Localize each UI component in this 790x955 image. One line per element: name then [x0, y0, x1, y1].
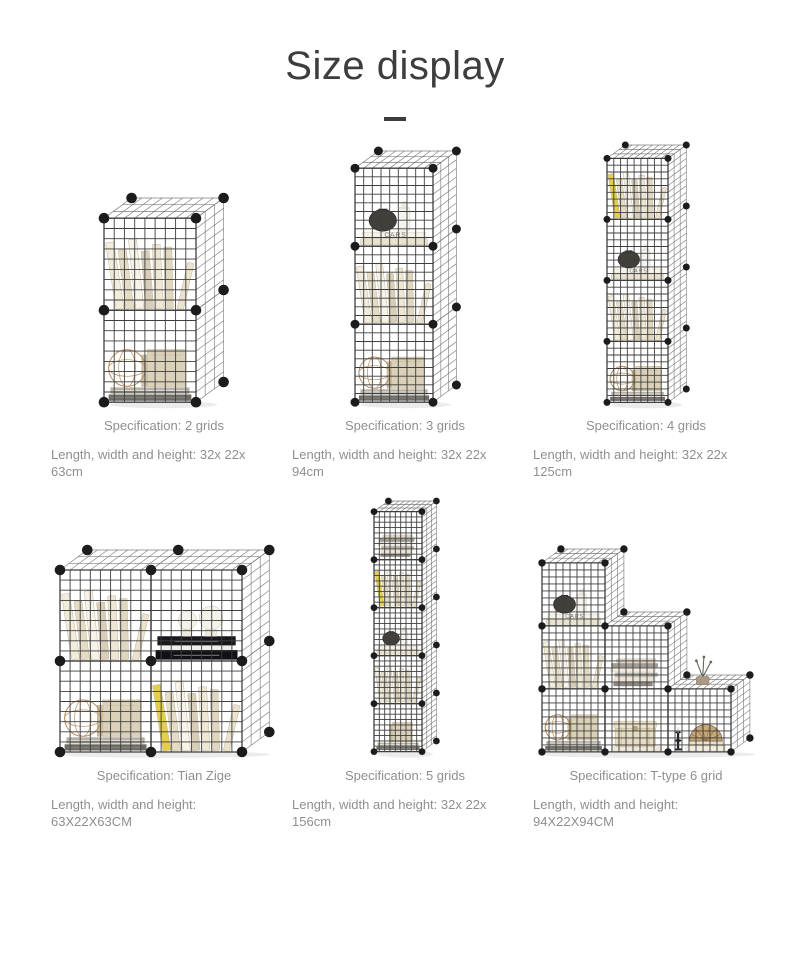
dimensions-label: Length, width and height: 63X22X63CM: [48, 797, 267, 831]
spec-label: Specification: 5 grids: [289, 768, 521, 784]
dimensions-label: Length, width and height: 32x 22x 156cm: [289, 797, 508, 831]
shelf-illustration-5-grids: [367, 493, 443, 761]
spec-label: Specification: 3 grids: [289, 418, 521, 434]
spec-label: Specification: Tian Zige: [48, 768, 280, 784]
size-display-section: Size display Specification: 2 grids Leng…: [0, 44, 790, 831]
product-photo-3-grids: CARS: [289, 135, 521, 411]
product-card-3-grids: CARS Specification: 3 grids Length, widt…: [289, 135, 521, 481]
product-caption: Specification: 5 grids Length, width and…: [289, 768, 521, 831]
dimensions-label: Length, width and height: 32x 22x 125cm: [530, 447, 749, 481]
page-title: Size display: [0, 44, 790, 89]
shelf-illustration-t-type-6-grid: CARS: [535, 541, 757, 761]
product-photo-t-type-6-grid: CARS: [530, 493, 762, 761]
spec-label: Specification: 2 grids: [48, 418, 280, 434]
dimensions-label: Length, width and height: 32x 22x 94cm: [289, 447, 508, 481]
shelf-illustration-3-grids: CARS: [348, 143, 463, 411]
title-divider: [384, 117, 406, 121]
spec-label: Specification: T-type 6 grid: [530, 768, 762, 784]
product-photo-5-grids: [289, 493, 521, 761]
product-grid: Specification: 2 grids Length, width and…: [0, 135, 790, 831]
product-photo-2-grids: [48, 135, 280, 411]
dimensions-label: Length, width and height: 94X22X94CM: [530, 797, 749, 831]
product-caption: Specification: Tian Zige Length, width a…: [48, 768, 280, 831]
product-photo-4-grids: CARS: [530, 135, 762, 411]
product-caption: Specification: 4 grids Length, width and…: [530, 418, 762, 481]
shelf-illustration-2-grids: [97, 190, 231, 411]
product-card-t-type-6-grid: CARS Specification: T-type 6 grid Length…: [530, 493, 762, 831]
shelf-illustration-tian-zige: [53, 542, 276, 761]
spec-label: Specification: 4 grids: [530, 418, 762, 434]
product-photo-tian-zige: [48, 493, 280, 761]
product-card-4-grids: CARS Specification: 4 grids Length, widt…: [530, 135, 762, 481]
product-card-2-grids: Specification: 2 grids Length, width and…: [48, 135, 280, 481]
dimensions-label: Length, width and height: 32x 22x 63cm: [48, 447, 267, 481]
product-card-5-grids: Specification: 5 grids Length, width and…: [289, 493, 521, 831]
shelf-illustration-4-grids: CARS: [600, 137, 693, 411]
svg-text:CARS: CARS: [384, 232, 406, 239]
product-card-tian-zige: Specification: Tian Zige Length, width a…: [48, 493, 280, 831]
product-caption: Specification: 2 grids Length, width and…: [48, 418, 280, 481]
product-caption: Specification: T-type 6 grid Length, wid…: [530, 768, 762, 831]
product-caption: Specification: 3 grids Length, width and…: [289, 418, 521, 481]
